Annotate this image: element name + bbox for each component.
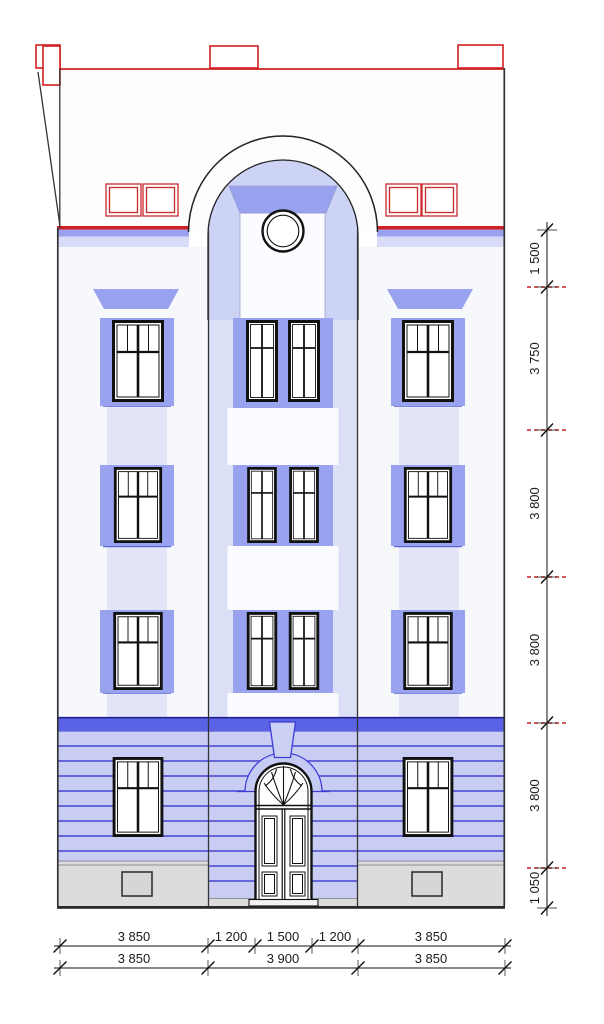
window <box>405 468 450 541</box>
window <box>290 322 319 401</box>
dim-bottom1-1: 1 200 <box>215 929 248 944</box>
dim-bottom1-3: 1 200 <box>319 929 352 944</box>
window <box>404 322 453 401</box>
door-threshold <box>249 900 318 907</box>
window <box>115 468 160 541</box>
window <box>291 468 318 541</box>
dimension-bottom-row2: 3 850 3 900 3 850 <box>54 951 512 976</box>
window <box>114 322 163 401</box>
keystone <box>270 722 296 758</box>
central-arch <box>189 136 378 320</box>
window <box>114 758 162 835</box>
chimney-left-lower <box>43 46 60 85</box>
dimension-right-chain: 1 500 3 750 3 800 3 800 3 800 1 050 <box>527 222 567 916</box>
dim-right-0: 1 500 <box>527 242 542 275</box>
window-cap-left <box>93 289 179 309</box>
window <box>248 322 277 401</box>
window <box>405 613 452 688</box>
dim-right-2: 3 800 <box>527 487 542 520</box>
dim-bottom1-2: 1 500 <box>267 929 300 944</box>
window <box>290 613 318 688</box>
chimney-right <box>458 45 503 68</box>
oculus-window <box>263 211 304 252</box>
roof-hip-edge <box>38 72 60 226</box>
dim-bottom1-4: 3 850 <box>415 929 448 944</box>
dim-right-5: 1 050 <box>527 872 542 905</box>
basement-window-right <box>412 872 442 896</box>
dim-bottom2-2: 3 850 <box>415 951 448 966</box>
dim-right-4: 3 800 <box>527 779 542 812</box>
dim-right-1: 3 750 <box>527 342 542 375</box>
window <box>404 758 452 835</box>
chimney-center <box>210 46 258 68</box>
elevation-drawing: 1 500 3 750 3 800 3 800 3 800 1 050 3 85… <box>0 0 604 1024</box>
dim-bottom2-1: 3 900 <box>267 951 300 966</box>
dim-bottom1-0: 3 850 <box>118 929 151 944</box>
arch-panel-cap <box>229 186 337 213</box>
window <box>248 613 276 688</box>
dim-right-3: 3 800 <box>527 634 542 667</box>
dim-bottom2-0: 3 850 <box>118 951 151 966</box>
window <box>249 468 276 541</box>
window-cap-right <box>387 289 473 309</box>
cad-canvas: 1 500 3 750 3 800 3 800 3 800 1 050 3 85… <box>0 0 604 1024</box>
basement-window-left <box>122 872 152 896</box>
window <box>115 613 162 688</box>
